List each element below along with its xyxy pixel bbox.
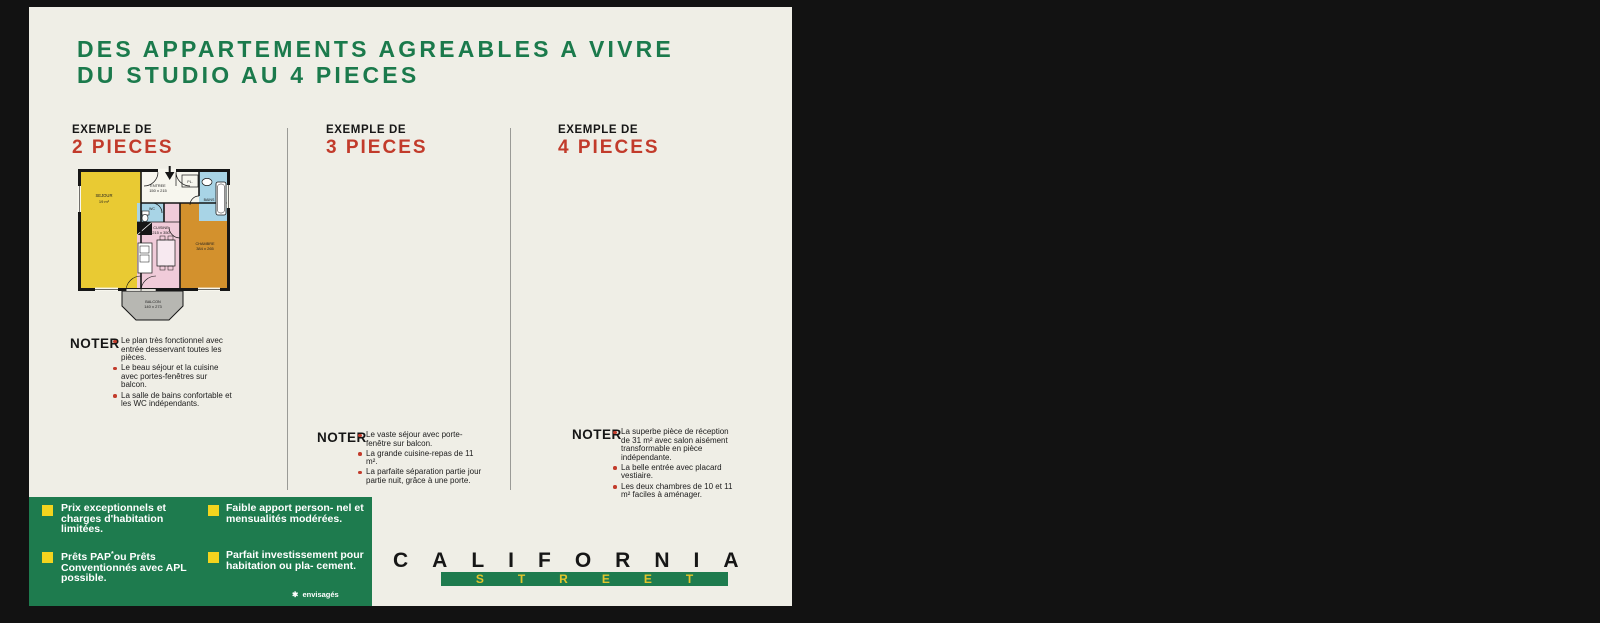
svg-text:140 x 273: 140 x 273 xyxy=(144,304,162,309)
svg-text:PL.: PL. xyxy=(187,180,192,184)
svg-text:BAINS: BAINS xyxy=(204,198,215,202)
svg-text:19 m²: 19 m² xyxy=(99,199,110,204)
svg-text:150 x 215: 150 x 215 xyxy=(149,188,167,193)
svg-text:SEJOUR: SEJOUR xyxy=(96,193,113,198)
svg-text:215 x 350: 215 x 350 xyxy=(152,230,170,235)
svg-text:384 x 265: 384 x 265 xyxy=(196,246,214,251)
svg-text:WC: WC xyxy=(149,207,155,211)
